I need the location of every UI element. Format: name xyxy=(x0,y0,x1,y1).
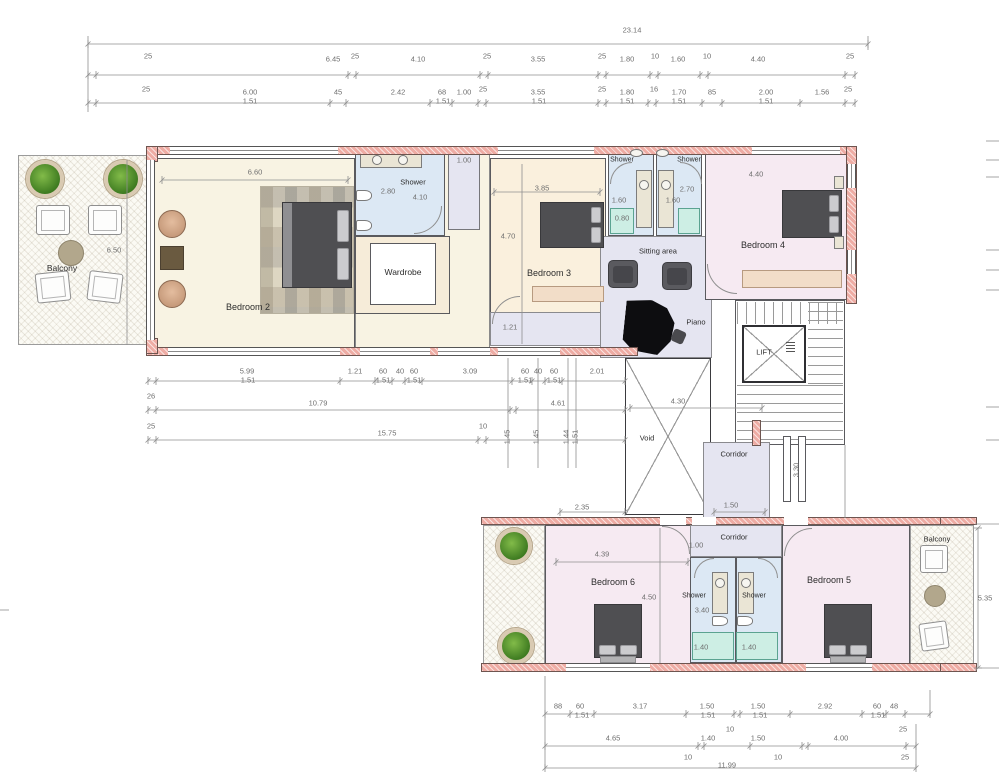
dim-label: 40 xyxy=(396,367,404,376)
dim-label: 3.55 xyxy=(531,55,546,64)
dim-label: 1.50 xyxy=(751,734,766,743)
sink-basin xyxy=(398,155,408,165)
dim-label: 4.65 xyxy=(606,734,621,743)
dim-label: 1.70 xyxy=(672,88,687,97)
dim-label: 11.99 xyxy=(718,761,736,770)
window xyxy=(438,347,490,356)
dim-label: 1.00 xyxy=(457,88,472,97)
dim-label: 5.35 xyxy=(978,594,993,603)
dim-label: 25 xyxy=(598,85,606,94)
dim-label: 60 xyxy=(873,702,881,711)
dim-label: 1.51 xyxy=(620,97,635,106)
dim-label: 10 xyxy=(726,725,734,734)
balcony-armchair xyxy=(920,545,948,573)
dim-label: 88 xyxy=(554,702,562,711)
dim-label: 6.45 xyxy=(326,55,341,64)
bed-pillow xyxy=(599,645,616,655)
dim-label: 60 xyxy=(550,367,558,376)
void-area-box xyxy=(625,358,711,515)
bed-pillow xyxy=(829,645,846,655)
bed-pillow xyxy=(337,248,349,280)
balcony-armchair xyxy=(918,620,950,652)
rattan-chair xyxy=(158,210,186,238)
dim-label: 3.09 xyxy=(463,367,478,376)
plant-pot xyxy=(104,160,142,198)
nightstand xyxy=(834,176,844,189)
side-table xyxy=(160,246,184,270)
dim-label: 25 xyxy=(351,52,359,61)
dim-label: 6.00 xyxy=(243,88,258,97)
dim-label: 1.51 xyxy=(241,376,256,385)
dim-label: 10 xyxy=(651,52,659,61)
room-label-void: Void xyxy=(640,434,655,443)
sink-basin xyxy=(656,149,669,157)
window xyxy=(498,347,560,356)
plant-pot xyxy=(26,160,64,198)
shower-tray xyxy=(610,208,634,234)
bed-pillow xyxy=(337,210,349,242)
window xyxy=(170,146,338,155)
dim-label: 68 xyxy=(438,88,446,97)
corridor-opening xyxy=(692,517,716,525)
sitting-armchair xyxy=(608,260,638,288)
dim-label: 4.00 xyxy=(834,734,849,743)
dim-label: 1.40 xyxy=(701,734,716,743)
dim-label: 5.99 xyxy=(240,367,255,376)
room-label-shower-c2: Shower xyxy=(677,157,701,164)
dim-label: 1.50 xyxy=(700,702,715,711)
bedroom6-bed xyxy=(594,604,642,658)
dim-label: 1.51 xyxy=(376,376,391,385)
wall-balcony-top-block xyxy=(940,517,977,525)
sink-basin xyxy=(715,578,725,588)
dim-label: 60 xyxy=(576,702,584,711)
room-label-bedroom3: Bedroom 3 xyxy=(527,268,571,278)
bed-pillow xyxy=(620,645,637,655)
dim-label: 10.79 xyxy=(309,399,328,408)
dim-label: 10 xyxy=(479,422,487,431)
wall-stub xyxy=(752,420,761,446)
dim-label: 25 xyxy=(144,52,152,61)
window xyxy=(566,663,650,672)
dim-label: 1.51 xyxy=(871,711,886,720)
shower-tray xyxy=(692,632,734,660)
window xyxy=(806,663,872,672)
dim-label: 1.56 xyxy=(815,88,830,97)
dim-label: 23.14 xyxy=(623,26,642,35)
room-label-corridor-upper: Corridor xyxy=(720,450,747,459)
dim-label: 25 xyxy=(899,725,907,734)
dim-label: 25 xyxy=(147,422,155,431)
room-label-piano: Piano xyxy=(686,318,705,327)
dim-label: 1.21 xyxy=(348,367,363,376)
shower-tray xyxy=(678,208,700,234)
dim-label: 3.17 xyxy=(633,702,648,711)
closet-strip xyxy=(448,150,480,230)
wall-bottomwing-top xyxy=(481,517,977,525)
sink-basin xyxy=(372,155,382,165)
dim-label: 1.60 xyxy=(671,55,686,64)
dim-label: 1.51 xyxy=(753,711,768,720)
stairs-right-treads xyxy=(808,302,843,384)
bed-footboard xyxy=(830,656,866,663)
dim-label: 25 xyxy=(483,52,491,61)
dim-label: 1.80 xyxy=(620,55,635,64)
window xyxy=(168,347,340,356)
dim-label: 45 xyxy=(334,88,342,97)
dim-label: 1.51 xyxy=(532,97,547,106)
dim-label: 26 xyxy=(147,392,155,401)
dim-label: 2.00 xyxy=(759,88,774,97)
wall-corner xyxy=(146,338,158,354)
dim-label: 4.61 xyxy=(551,399,566,408)
dim-label: 25 xyxy=(846,52,854,61)
bed-pillow xyxy=(591,227,601,243)
lift-door-icon xyxy=(786,342,795,352)
dim-label: 1.51 xyxy=(575,711,590,720)
dim-label: 10 xyxy=(774,753,782,762)
balcony-armchair xyxy=(36,205,70,235)
balcony-armchair xyxy=(35,270,72,303)
railing-slat xyxy=(798,436,806,502)
balcony-armchair xyxy=(86,270,123,304)
dim-label: 1.45 xyxy=(532,430,541,445)
dim-label: 25 xyxy=(901,753,909,762)
bed-duvet-edge xyxy=(283,203,292,287)
toilet xyxy=(712,616,728,626)
dim-label: 1.51 xyxy=(547,376,562,385)
room-label-bedroom5: Bedroom 5 xyxy=(807,575,851,585)
room-label-shower-c1: Shower xyxy=(610,157,634,164)
shower-c1-vanity xyxy=(636,170,652,228)
dim-label: 1.45 xyxy=(503,430,512,445)
dim-label: 16 xyxy=(650,85,658,94)
shower-c2-vanity xyxy=(658,170,674,228)
rattan-chair xyxy=(158,280,186,308)
room-label-sitting-area: Sitting area xyxy=(639,247,677,256)
window xyxy=(847,164,856,188)
plant-pot xyxy=(498,628,534,664)
room-label-bedroom6: Bedroom 6 xyxy=(591,577,635,587)
bed-footboard xyxy=(600,656,636,663)
dim-label: 25 xyxy=(479,85,487,94)
window-wall xyxy=(146,160,155,340)
toilet xyxy=(356,190,372,201)
toilet xyxy=(356,220,372,231)
balcony-table xyxy=(924,585,946,607)
bed-pillow xyxy=(829,195,839,212)
dim-label: 60 xyxy=(379,367,387,376)
toilet xyxy=(737,616,753,626)
wall-balcony-bottom-block xyxy=(940,663,977,672)
bedroom5-bed xyxy=(824,604,872,658)
dim-label: 1.80 xyxy=(620,88,635,97)
dim-label: 1.51 xyxy=(701,711,716,720)
room-label-corridor-lower: Corridor xyxy=(720,533,747,542)
door-opening xyxy=(660,517,686,525)
room-label-balcony-left: Balcony xyxy=(47,263,77,273)
sink-basin xyxy=(741,578,751,588)
dim-label: 48 xyxy=(890,702,898,711)
dim-label: 1.51 xyxy=(571,430,580,445)
room-label-shower2: Shower xyxy=(400,178,425,187)
dim-label: 2.01 xyxy=(590,367,605,376)
dim-label: 2.42 xyxy=(391,88,406,97)
bed-pillow xyxy=(829,216,839,233)
room-label-shower-b1: Shower xyxy=(682,593,706,600)
bedroom3-bed xyxy=(540,202,604,248)
dim-label: 4.10 xyxy=(411,55,426,64)
bed-pillow xyxy=(850,645,867,655)
sitting-armchair xyxy=(662,262,692,290)
room-label-balcony-right: Balcony xyxy=(924,535,951,544)
dim-label: 1.51 xyxy=(672,97,687,106)
dim-label: 25 xyxy=(142,85,150,94)
dim-label: 40 xyxy=(534,367,542,376)
dim-label: 10 xyxy=(684,753,692,762)
room-label-bedroom2: Bedroom 2 xyxy=(226,302,270,312)
dim-label: 3.55 xyxy=(531,88,546,97)
wall-bottomwing-bottom xyxy=(481,663,977,672)
dim-label: 1.51 xyxy=(759,97,774,106)
bedroom2-bed xyxy=(282,202,352,288)
dim-label: 2.92 xyxy=(818,702,833,711)
sink-basin xyxy=(661,180,671,190)
dim-label: 25 xyxy=(598,52,606,61)
bed-pillow xyxy=(591,207,601,223)
bedroom3-bench xyxy=(532,286,604,302)
room-label-bedroom4: Bedroom 4 xyxy=(741,240,785,250)
room-label-wardrobe: Wardrobe xyxy=(384,267,421,277)
plant-pot xyxy=(496,528,532,564)
door-opening xyxy=(784,517,808,525)
room-label-lift: LIFT xyxy=(756,348,771,357)
dim-label: 2.35 xyxy=(575,503,590,512)
dim-label: 1.44 xyxy=(562,430,571,445)
nightstand xyxy=(834,236,844,249)
railing-slat xyxy=(783,436,791,502)
window xyxy=(847,250,856,274)
room-label-shower-b2: Shower xyxy=(742,593,766,600)
shower-tray xyxy=(736,632,778,660)
dim-label: 1.51 xyxy=(407,376,422,385)
dim-label: 1.51 xyxy=(436,97,451,106)
sink-basin xyxy=(639,180,649,190)
dim-label: 15.75 xyxy=(378,429,397,438)
dim-label: 1.50 xyxy=(751,702,766,711)
bedroom4-bench xyxy=(742,270,842,288)
dim-label: 1.51 xyxy=(243,97,258,106)
balcony-armchair xyxy=(88,205,122,235)
window xyxy=(498,146,594,155)
dim-label: 60 xyxy=(521,367,529,376)
dim-label: 10 xyxy=(703,52,711,61)
window xyxy=(752,146,840,155)
lift-shaft xyxy=(742,325,806,383)
dim-label: 25 xyxy=(844,85,852,94)
dim-label: 1.51 xyxy=(518,376,533,385)
dim-label: 4.40 xyxy=(751,55,766,64)
bedroom4-bed xyxy=(782,190,842,238)
dim-label: 60 xyxy=(410,367,418,376)
window xyxy=(360,347,430,356)
dim-label: 85 xyxy=(708,88,716,97)
floor-plan: 23.14256.45254.10253.55251.80101.60104.4… xyxy=(0,0,999,778)
